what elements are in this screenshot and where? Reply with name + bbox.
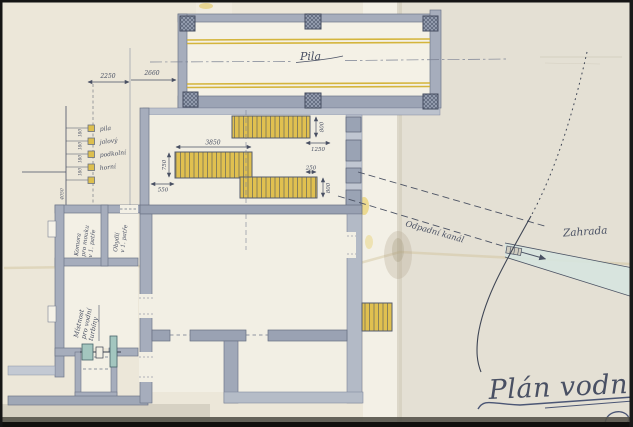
- dim-label: 800: [326, 182, 332, 193]
- dim-label: 3850: [205, 140, 220, 147]
- turbine-coupling: [96, 347, 103, 358]
- frame-bottom-edge: [0, 422, 633, 427]
- wall-segment: [140, 108, 149, 208]
- turbine-wheel: [110, 336, 117, 367]
- hall-interior: [152, 214, 347, 392]
- pilaster-block: [346, 190, 361, 207]
- dim-label: 550: [158, 188, 169, 194]
- frame-top-edge: [0, 0, 633, 3]
- frame-right-edge: [630, 0, 633, 427]
- level-square: [88, 177, 95, 184]
- outer-wall: [8, 396, 148, 405]
- plan-canvas: Pila 800 1250 3850 750 550 250 800: [0, 0, 633, 427]
- yellow-stain-2: [365, 235, 373, 249]
- track-line: [187, 87, 430, 88]
- dim-label: 1250: [311, 147, 325, 153]
- wall-segment: [143, 108, 440, 115]
- wall-segment: [75, 352, 81, 398]
- yellow-stain-3: [199, 3, 213, 9]
- pier-block: [423, 94, 438, 109]
- pilaster-block: [346, 140, 361, 161]
- window-sill: [48, 221, 56, 237]
- window-sill: [48, 306, 56, 322]
- pier-block: [183, 92, 198, 107]
- main-hall: [139, 205, 392, 403]
- level-name: pila: [99, 125, 111, 133]
- track-line: [187, 43, 430, 44]
- dim-label: 750: [162, 159, 168, 170]
- dim-label: 800: [320, 121, 326, 132]
- wall-segment: [55, 258, 138, 266]
- level-tick-value: 180: [78, 142, 83, 150]
- dim-label: 2250: [99, 73, 115, 80]
- sluice-bar-a: [232, 116, 310, 138]
- sluice-bar-d: [362, 303, 392, 331]
- level-total-value: 4050: [60, 188, 66, 201]
- partition-wall: [190, 330, 246, 341]
- wall-segment: [224, 392, 363, 403]
- level-tick-value: 180: [78, 168, 83, 176]
- level-tick-value: 180: [78, 155, 83, 163]
- dim-label: 250: [305, 166, 317, 172]
- fold-wrinkle-core: [392, 238, 404, 262]
- sluice-bar-c: [240, 177, 317, 198]
- level-tick-value: 180: [78, 129, 83, 137]
- track-line: [187, 39, 430, 40]
- scanned-mill-plan: Pila 800 1250 3850 750 550 250 800: [0, 0, 633, 427]
- sluice-bar-b: [175, 152, 252, 178]
- pilaster-block: [346, 117, 361, 132]
- level-square: [88, 138, 95, 145]
- dim-label: 2660: [143, 70, 159, 77]
- frame-left-edge: [0, 0, 3, 427]
- pier-block: [180, 16, 195, 31]
- track-line: [187, 83, 430, 84]
- level-square: [88, 164, 95, 171]
- wall-segment: [101, 205, 108, 266]
- pier-block: [305, 93, 321, 108]
- level-square: [88, 151, 95, 158]
- wall-opening: [139, 294, 153, 318]
- turbine-body: [82, 344, 93, 360]
- wall-segment: [140, 205, 362, 214]
- pier-block: [305, 14, 321, 29]
- partition-wall: [268, 330, 347, 341]
- pier-block: [423, 16, 438, 31]
- level-square: [88, 125, 95, 132]
- partition-wall: [152, 330, 170, 341]
- wall-opening: [139, 352, 153, 382]
- pilaster-block: [346, 168, 361, 183]
- outer-wall-light: [8, 366, 55, 375]
